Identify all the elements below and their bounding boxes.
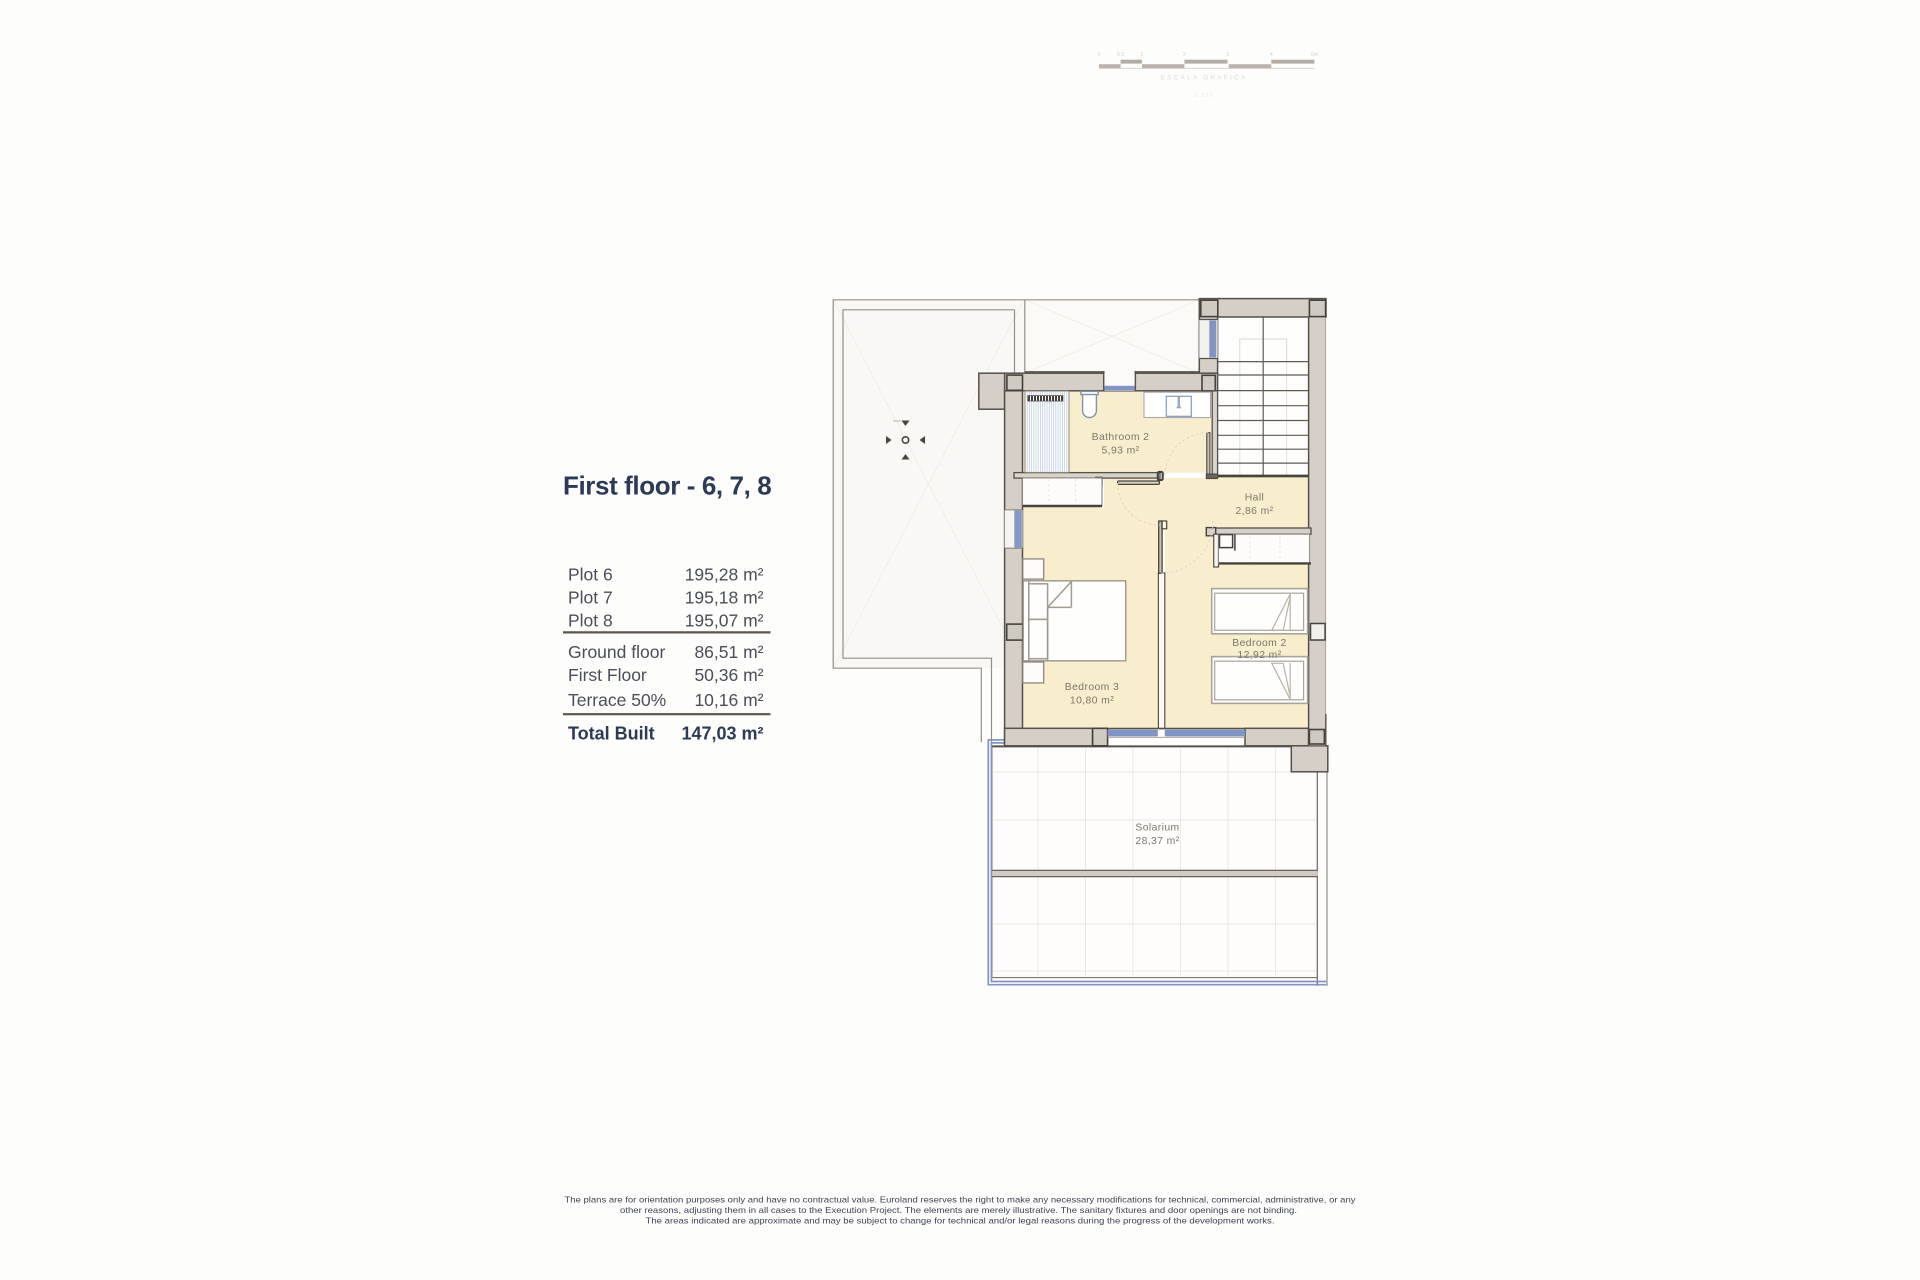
svg-text:2,86 m²: 2,86 m² xyxy=(1235,506,1273,517)
svg-text:0,5: 0,5 xyxy=(1117,52,1125,58)
svg-text:The plans are for orientation: The plans are for orientation purposes o… xyxy=(565,1194,1357,1204)
svg-text:Terrace 50%: Terrace 50% xyxy=(568,690,666,710)
svg-text:86,51 m²: 86,51 m² xyxy=(694,642,763,662)
svg-text:Bathroom 2: Bathroom 2 xyxy=(1092,432,1150,443)
svg-text:195,18 m²: 195,18 m² xyxy=(685,588,764,608)
svg-text:Ground floor: Ground floor xyxy=(568,642,665,662)
svg-text:10,16 m²: 10,16 m² xyxy=(694,690,763,710)
svg-text:1: 1 xyxy=(1140,52,1143,58)
svg-text:ESCALA GRAFICA: ESCALA GRAFICA xyxy=(1161,75,1248,82)
svg-text:First floor - 6, 7, 8: First floor - 6, 7, 8 xyxy=(563,471,771,501)
svg-text:12,92 m²: 12,92 m² xyxy=(1237,650,1281,661)
svg-text:5m: 5m xyxy=(1311,52,1319,58)
svg-text:4: 4 xyxy=(1270,52,1273,58)
svg-text:Bedroom 2: Bedroom 2 xyxy=(1232,638,1286,649)
svg-text:195,07 m²: 195,07 m² xyxy=(685,611,764,631)
svg-text:Plot 7: Plot 7 xyxy=(568,588,613,608)
svg-text:Plot 8: Plot 8 xyxy=(568,611,613,631)
svg-text:147,03 m²: 147,03 m² xyxy=(681,724,763,744)
svg-text:Plot 6: Plot 6 xyxy=(568,565,613,585)
svg-text:First Floor: First Floor xyxy=(568,665,647,685)
svg-text:2: 2 xyxy=(1183,52,1186,58)
svg-text:Total Built: Total Built xyxy=(568,724,655,744)
svg-text:other reasons, adjusting them: other reasons, adjusting them in all cas… xyxy=(620,1205,1297,1215)
svg-text:50,36 m²: 50,36 m² xyxy=(694,665,763,685)
svg-text:195,28 m²: 195,28 m² xyxy=(685,565,764,585)
svg-text:Hall: Hall xyxy=(1245,493,1265,504)
svg-text:1:100: 1:100 xyxy=(1195,93,1214,99)
svg-text:10,80 m²: 10,80 m² xyxy=(1070,696,1114,707)
svg-text:Bedroom 3: Bedroom 3 xyxy=(1065,682,1119,693)
svg-text:0: 0 xyxy=(1097,52,1100,58)
svg-text:The areas indicated are approx: The areas indicated are approximate and … xyxy=(646,1216,1275,1226)
svg-text:28,37 m²: 28,37 m² xyxy=(1135,836,1179,847)
svg-text:Solarium: Solarium xyxy=(1135,823,1179,834)
svg-text:3: 3 xyxy=(1226,52,1229,58)
svg-text:5,93 m²: 5,93 m² xyxy=(1101,446,1139,457)
